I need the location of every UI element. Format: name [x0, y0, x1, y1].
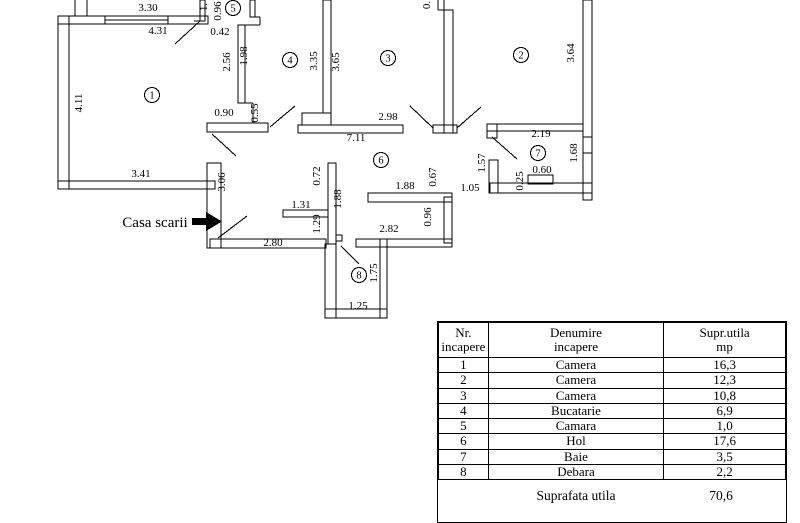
table-cell: 7: [439, 449, 489, 464]
dimension-labels: 3.304.311.0.960.422.561.983.353.650.3.64…: [73, 1, 580, 312]
stairwell-annotation: Casa scarii: [122, 212, 222, 231]
room-number: 3: [385, 54, 390, 65]
dimension-label: 1.68: [568, 143, 580, 163]
column-header-suprafata: Supr.utilamp: [664, 323, 786, 358]
table-cell: Camera: [488, 373, 664, 388]
column-header-denumire: Denumireincapere: [488, 323, 664, 358]
table-cell: 3,5: [664, 449, 786, 464]
table-row: 8Debara2,2: [439, 465, 786, 480]
table-cell: 2,2: [664, 465, 786, 480]
table-header-row: Nr.incapere Denumireincapere Supr.utilam…: [439, 323, 786, 358]
dimension-label: 0.96: [212, 1, 224, 21]
dimension-label: 1.88: [332, 189, 344, 209]
dimension-label: 7.11: [347, 132, 366, 144]
table-cell: 10,8: [664, 388, 786, 403]
table-cell: 2: [439, 373, 489, 388]
dimension-label: 3.41: [131, 168, 150, 180]
dimension-label: 0.55: [249, 103, 261, 123]
dimension-label: 0.72: [311, 166, 323, 185]
table-cell: Bucatarie: [488, 403, 664, 418]
dimension-label: 1.: [198, 3, 210, 12]
total-area-value: 70,6: [709, 488, 733, 504]
room-number: 6: [378, 156, 383, 167]
stairwell-label: Casa scarii: [122, 215, 187, 231]
dimension-label: 1.98: [238, 46, 250, 66]
room-number: 2: [518, 51, 523, 62]
table-cell: 6: [439, 434, 489, 449]
room-number: 1: [149, 91, 154, 102]
table-cell: Baie: [488, 449, 664, 464]
table-footer: Suprafata utila 70,6: [438, 482, 786, 522]
column-header-nr: Nr.incapere: [439, 323, 489, 358]
dimension-label: 1.29: [311, 214, 323, 234]
dimension-label: 0.25: [514, 171, 526, 191]
dimension-label: 4.11: [73, 94, 85, 113]
dimension-label: 0.60: [532, 164, 552, 176]
table-cell: Camera: [488, 358, 664, 373]
table-cell: Hol: [488, 434, 664, 449]
room-number: 7: [535, 149, 540, 160]
total-area-label: Suprafata utila: [536, 488, 615, 504]
dimension-label: 3.35: [308, 51, 320, 71]
table-cell: 16,3: [664, 358, 786, 373]
dimension-label: 2.80: [263, 237, 283, 249]
room-number: 4: [287, 56, 293, 67]
dimension-label: 0.67: [427, 167, 439, 187]
room-number: 5: [230, 4, 235, 15]
dimension-label: 0.42: [210, 26, 229, 38]
table-cell: 8: [439, 465, 489, 480]
dimension-label: 0.90: [214, 107, 234, 119]
dimension-label: 3.06: [216, 172, 228, 192]
dimension-label: 1.05: [460, 182, 480, 194]
table-cell: Debara: [488, 465, 664, 480]
table-row: 6Hol17,6: [439, 434, 786, 449]
table-row: 2Camera12,3: [439, 373, 786, 388]
table-cell: Camara: [488, 419, 664, 434]
table-row: 3Camera10,8: [439, 388, 786, 403]
table-cell: Camera: [488, 388, 664, 403]
table-cell: 1: [439, 358, 489, 373]
table-cell: 3: [439, 388, 489, 403]
dimension-label: 0.: [421, 1, 433, 10]
dimension-label: 3.65: [330, 52, 342, 72]
table-cell: 4: [439, 403, 489, 418]
table-row: 7Baie3,5: [439, 449, 786, 464]
walls: [58, 0, 592, 318]
table-row: 5Camara1,0: [439, 419, 786, 434]
table-cell: 17,6: [664, 434, 786, 449]
dimension-label: 0.96: [422, 207, 434, 227]
dimension-label: 2.82: [379, 223, 398, 235]
dimension-label: 1.25: [348, 300, 368, 312]
dimension-label: 2.19: [531, 128, 551, 140]
dimension-label: 2.56: [221, 52, 233, 72]
dimension-label: 4.31: [148, 25, 167, 37]
floor-plan-page: { "floorplan": { "stairwell_label": "Cas…: [0, 0, 800, 500]
stairwell-arrow-icon: [192, 212, 222, 231]
table-cell: 5: [439, 419, 489, 434]
table-row: 4Bucatarie6,9: [439, 403, 786, 418]
room-area-table: Nr.incapere Denumireincapere Supr.utilam…: [437, 321, 787, 523]
table-cell: 6,9: [664, 403, 786, 418]
dimension-label: 3.64: [565, 43, 577, 63]
table-cell: 12,3: [664, 373, 786, 388]
room-number-markers: 12345678: [145, 1, 546, 283]
dimension-label: 1.75: [368, 263, 380, 283]
table-cell: 1,0: [664, 419, 786, 434]
dimension-label: 1.31: [291, 199, 310, 211]
rooms-table: Nr.incapere Denumireincapere Supr.utilam…: [438, 322, 786, 480]
dimension-label: 3.30: [138, 2, 158, 14]
room-number: 8: [356, 271, 361, 282]
dimension-label: 1.88: [395, 180, 415, 192]
dimension-label: 1.57: [476, 153, 488, 173]
table-row: 1Camera16,3: [439, 358, 786, 373]
dimension-label: 2.98: [378, 111, 398, 123]
